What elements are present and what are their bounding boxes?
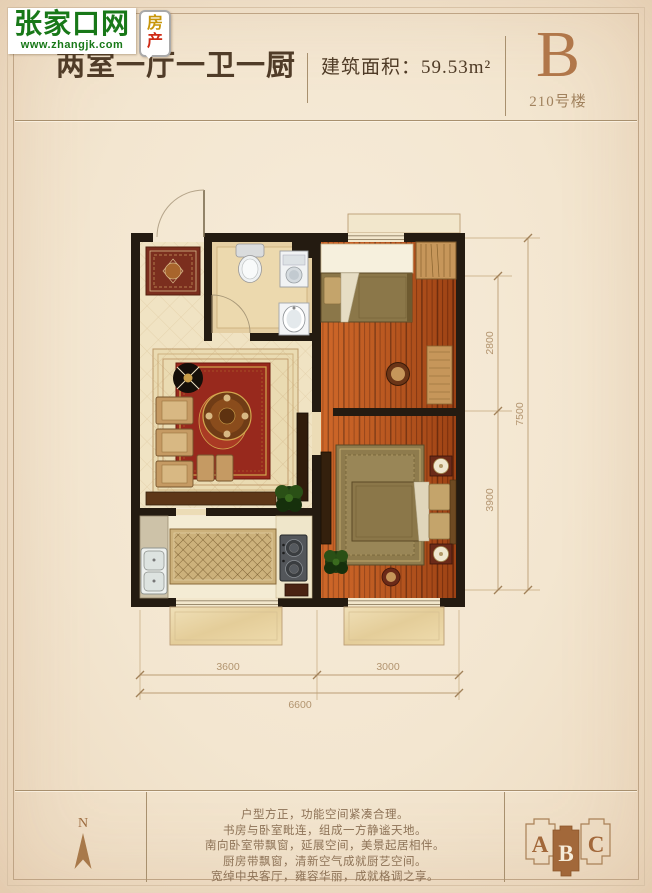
nightstand-2	[430, 544, 452, 564]
kitchen-bay-window	[170, 607, 282, 645]
single-bed	[321, 273, 412, 322]
living-room-furniture	[146, 349, 308, 512]
floor-plan-canvas: 2800 3900 7500 3600 3000 6600 N A B C	[0, 0, 652, 893]
entry-door-swing	[157, 190, 204, 237]
gas-stove	[280, 535, 307, 581]
dim-bottom-right: 3000	[376, 661, 400, 673]
bedroom-bay-window	[344, 607, 444, 645]
entry-mat	[146, 247, 200, 295]
site-logo-url: www.zhangjk.com	[14, 39, 130, 52]
description-line: 书房与卧室毗连，组成一方静谧天地。	[150, 824, 500, 840]
wall-between-bedrooms	[333, 408, 456, 416]
wall-top-3	[404, 233, 465, 242]
block-a-label: A	[532, 832, 549, 857]
floor-plan	[131, 190, 465, 645]
dim-right-upper: 2800	[484, 331, 496, 355]
site-logo-main: 张家口网 www.zhangjk.com	[8, 8, 136, 54]
site-logo: 张家口网 www.zhangjk.com 房 产	[8, 8, 171, 57]
dim-bottom-total: 6600	[288, 699, 312, 711]
study-stool	[387, 363, 410, 386]
kitchen-dark-cabinet	[285, 584, 308, 596]
window-bedroom-bay	[348, 598, 440, 607]
plan-description: 户型方正，功能空间紧凑合理。 书房与卧室毗连，组成一方静谧天地。 南向卧室带飘窗…	[150, 808, 500, 886]
tv-cabinet-bedroom	[321, 452, 331, 544]
wall-divider-lower	[312, 455, 321, 607]
wall-divider-upper	[312, 233, 321, 412]
round-table	[203, 392, 251, 440]
wall-kitchen-1	[136, 508, 176, 516]
wall-top-2	[204, 233, 348, 242]
dim-right-total: 7500	[514, 402, 526, 426]
wall-bathroom-left	[204, 242, 212, 341]
realty-badge-char-2: 产	[147, 33, 163, 51]
storage-cabinet	[146, 492, 276, 505]
nightstand-1	[430, 456, 452, 476]
realty-badge: 房 产	[139, 10, 171, 57]
floorplan-page: 张家口网 www.zhangjk.com 房 产 两室一厅一卫一厨 建筑面积：5…	[0, 0, 652, 893]
study-bay-sill	[321, 244, 413, 273]
description-line: 宽绰中央客厅，雍容华丽，成就格调之享。	[150, 870, 500, 886]
window-top	[348, 233, 404, 242]
study-side-mat	[427, 346, 452, 404]
bed-pillow-1	[429, 484, 450, 510]
window-kitchen-bay	[176, 598, 278, 607]
description-line: 南向卧室带飘窗，延展空间，美景起居相伴。	[150, 839, 500, 855]
single-bed-pillow	[324, 277, 341, 304]
headboard	[450, 480, 456, 544]
description-line: 厨房带飘窗，清新空气成就厨艺空间。	[150, 855, 500, 871]
north-compass: N	[75, 816, 92, 869]
kitchen-doorway-threshold	[176, 509, 206, 515]
plant-bedroom	[324, 550, 348, 574]
wall-right	[456, 233, 465, 607]
bed-pillow-2	[429, 513, 450, 539]
wall-bottom-3	[440, 598, 465, 607]
bedroom-stool	[382, 568, 400, 586]
north-label: N	[78, 816, 88, 831]
site-plan-blocks: A B C	[526, 819, 610, 876]
site-logo-name: 张家口网	[14, 9, 130, 39]
wall-left	[131, 233, 140, 607]
bedroom-doorway-threshold	[312, 412, 321, 455]
block-b-label: B	[558, 841, 573, 866]
dim-bottom-left: 3600	[216, 661, 240, 673]
realty-badge-char-1: 房	[147, 15, 163, 33]
north-arrow-icon	[75, 833, 92, 869]
plant-living	[275, 485, 303, 512]
wall-bottom-1	[131, 598, 176, 607]
description-line: 户型方正，功能空间紧凑合理。	[150, 808, 500, 824]
north-bay-window	[348, 214, 460, 233]
study-wardrobe	[416, 242, 456, 279]
bay-windows	[170, 607, 444, 645]
dim-right-lower: 3900	[484, 488, 496, 512]
toilet-tank	[236, 244, 264, 257]
block-c-label: C	[588, 832, 605, 857]
